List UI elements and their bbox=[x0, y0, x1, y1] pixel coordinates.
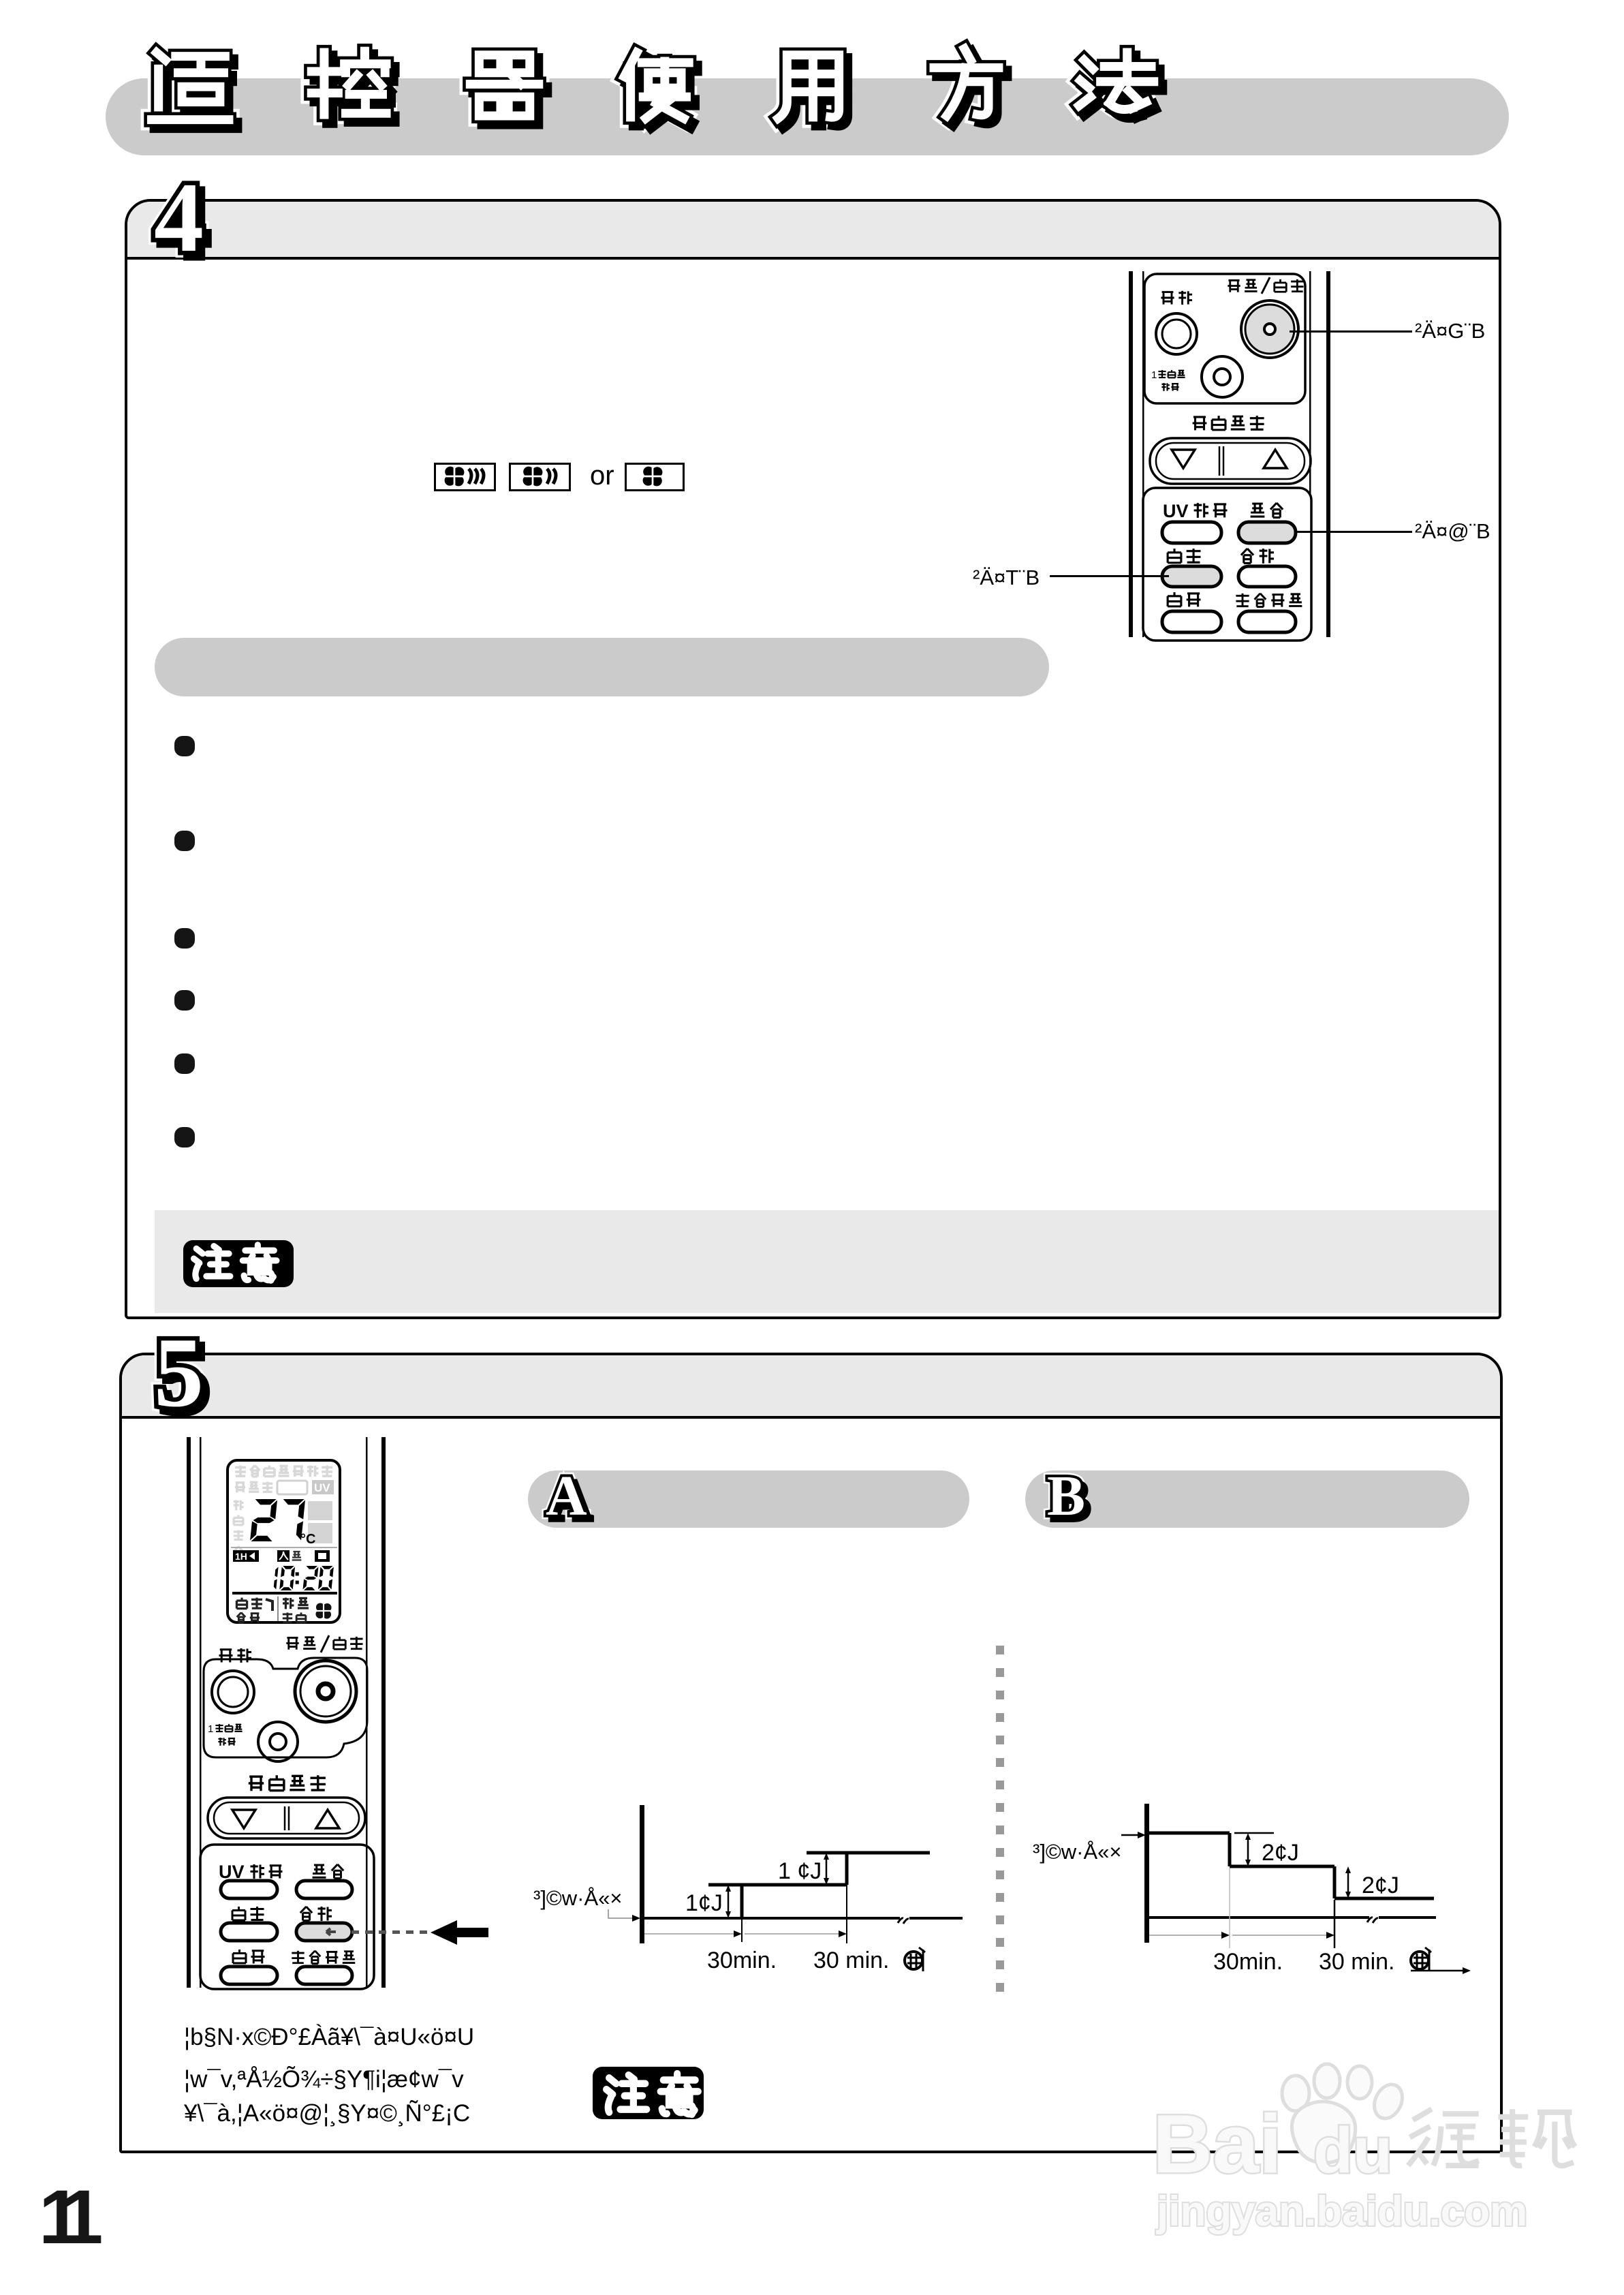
svg-text:UV: UV bbox=[314, 1481, 330, 1494]
svg-text:B: B bbox=[1047, 1464, 1085, 1528]
svg-text:1: 1 bbox=[208, 1723, 213, 1735]
svg-text:30min.: 30min. bbox=[1213, 1949, 1283, 1975]
svg-text:1H: 1H bbox=[235, 1551, 247, 1562]
svg-text:UV: UV bbox=[1163, 501, 1189, 521]
svg-text:30min.: 30min. bbox=[707, 1947, 777, 1973]
svg-text:³]©w·Å«×: ³]©w·Å«× bbox=[1033, 1840, 1122, 1864]
svg-text:5: 5 bbox=[154, 1317, 204, 1428]
svg-text:Bai: Bai bbox=[1153, 2097, 1282, 2190]
svg-text:4: 4 bbox=[154, 162, 204, 273]
svg-text:°C: °C bbox=[300, 1532, 315, 1547]
svg-text:2¢J: 2¢J bbox=[1262, 1840, 1299, 1866]
svg-text:30 min.: 30 min. bbox=[1319, 1949, 1395, 1975]
svg-text:1¢J: 1¢J bbox=[685, 1890, 723, 1916]
svg-text:A: A bbox=[546, 1464, 587, 1528]
svg-text:1: 1 bbox=[1151, 369, 1157, 381]
svg-text:du: du bbox=[1313, 2114, 1392, 2187]
svg-text:30 min.: 30 min. bbox=[813, 1947, 890, 1973]
svg-text:jingyan.baidu.com: jingyan.baidu.com bbox=[1156, 2188, 1527, 2235]
svg-text:³]©w·Å«×: ³]©w·Å«× bbox=[533, 1886, 623, 1910]
svg-text:2¢J: 2¢J bbox=[1362, 1873, 1399, 1898]
svg-text:1 ¢J: 1 ¢J bbox=[778, 1858, 822, 1884]
